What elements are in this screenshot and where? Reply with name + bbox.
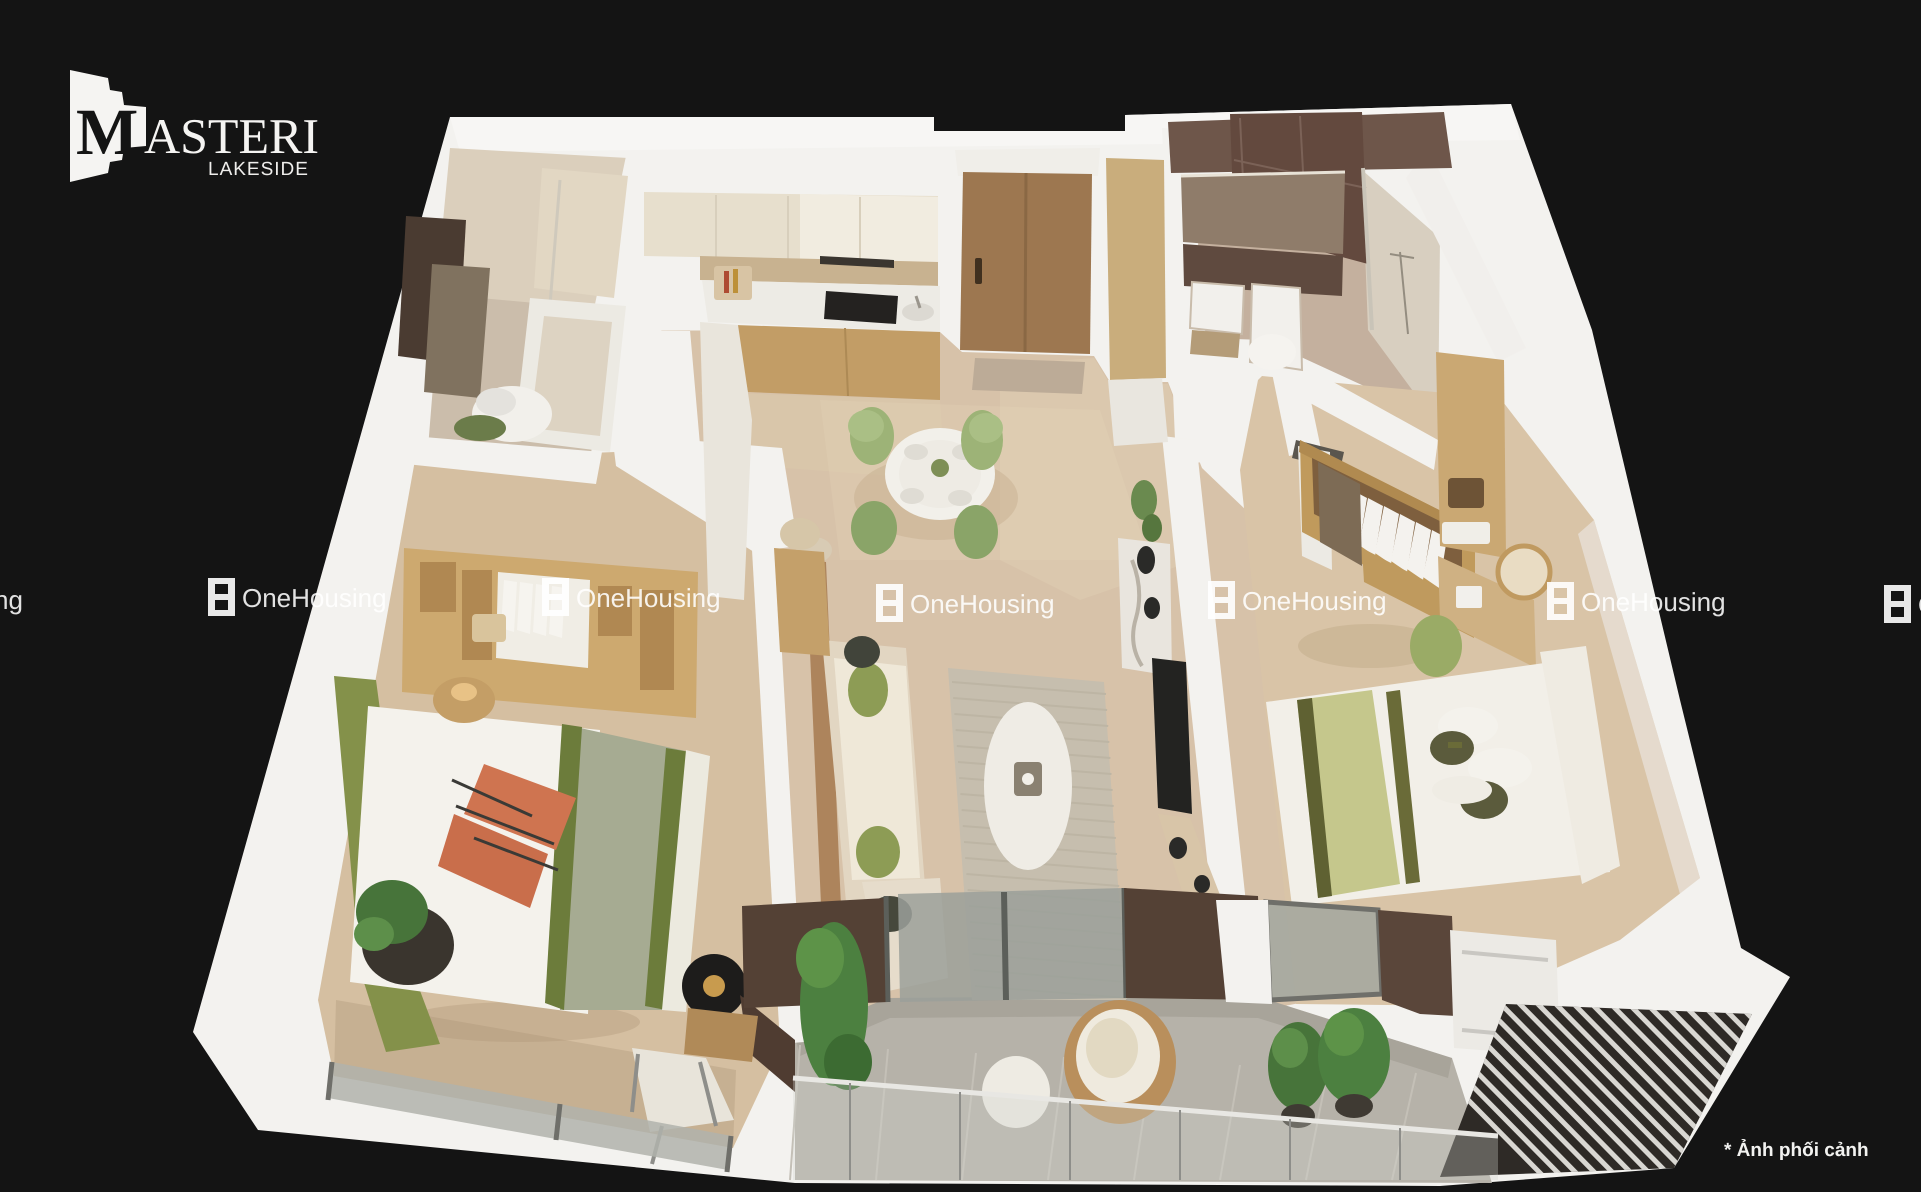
svg-text:LAKESIDE: LAKESIDE — [208, 159, 309, 180]
svg-text:OneHousing: OneHousing — [1242, 586, 1387, 616]
svg-text:M: M — [76, 96, 138, 169]
svg-text:OneHousing: OneHousing — [576, 583, 721, 613]
svg-text:* Ảnh phối cảnh: * Ảnh phối cảnh — [1724, 1138, 1869, 1161]
svg-text:OneHousing: OneHousing — [910, 589, 1055, 619]
svg-text:OneHousing: OneHousing — [1581, 587, 1726, 617]
svg-text:ng: ng — [0, 585, 23, 615]
svg-text:ASTERI: ASTERI — [144, 108, 319, 164]
svg-text:OneHousing: OneHousing — [242, 583, 387, 613]
